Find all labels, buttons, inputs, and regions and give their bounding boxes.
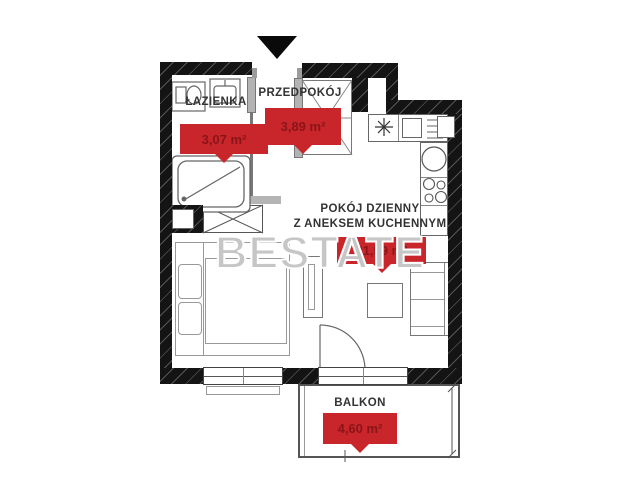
floor-plan: ŁAZIENKA PRZEDPOKÓJ POKÓJ DZIENNY Z ANEK… [0, 0, 625, 500]
door-jamb [252, 68, 257, 78]
wall-right [448, 114, 462, 384]
wall-top-kitchen [386, 100, 462, 114]
area-badge-hall: 3,89 m² [265, 108, 341, 145]
window-balcony-icon [318, 367, 408, 385]
entrance-arrow-icon [257, 36, 297, 59]
room-label-hall: PRZEDPOKÓJ [258, 87, 341, 99]
wall-top-bathroom [160, 62, 252, 75]
stove-icon [424, 179, 447, 203]
room-label-living-1: POKÓJ DZIENNY [320, 203, 419, 215]
door-jamb [297, 68, 302, 78]
wall-column [352, 78, 368, 112]
window-bedroom-icon [203, 367, 283, 385]
wall-top-hall [302, 63, 398, 78]
balcony-door-icon [320, 325, 365, 368]
room-label-bathroom: ŁAZIENKA [185, 96, 246, 108]
bathtub-icon [172, 156, 250, 212]
bathroom-door-icon [247, 77, 256, 113]
watermark-text: BESTATE [215, 227, 425, 279]
area-badge-balcony: 4,60 m² [323, 413, 397, 444]
room-label-balcony: BALKON [334, 397, 386, 409]
shaft-icon [437, 116, 455, 138]
shaft-icon [172, 209, 194, 229]
area-badge-bathroom: 3,07 m² [180, 124, 268, 154]
light-symbol-icon [375, 118, 393, 136]
kitchen-sink-icon [422, 147, 446, 171]
